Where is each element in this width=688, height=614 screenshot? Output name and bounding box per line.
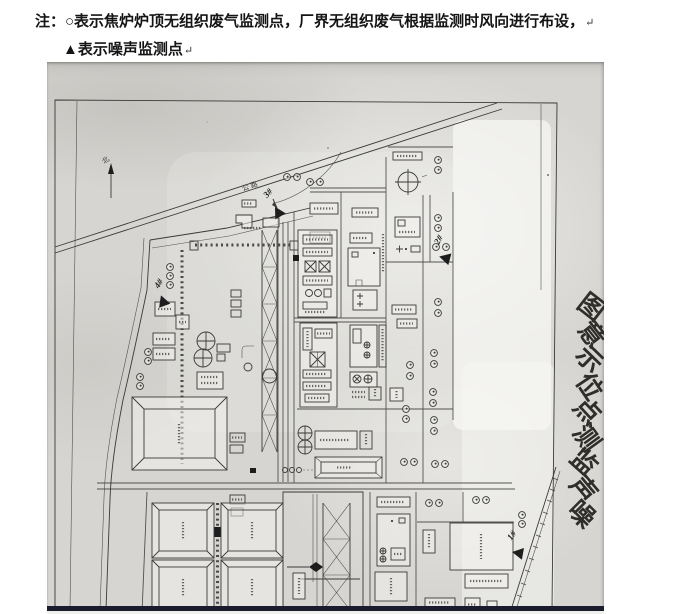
gas-monitoring-point-dot xyxy=(439,502,441,504)
blower-and-tanks xyxy=(230,426,382,478)
gas-monitoring-point-dot xyxy=(438,312,440,314)
gas-monitoring-point-dot xyxy=(522,523,524,525)
gas-monitoring-point-dot xyxy=(434,430,436,432)
gas-monitoring-point-dot xyxy=(429,502,431,504)
gas-monitoring-point-dot xyxy=(170,275,172,277)
gas-monitoring-point-dot xyxy=(320,181,322,183)
north-arrow xyxy=(108,163,114,198)
coal-yard-large xyxy=(132,397,227,470)
gas-monitoring-point-dot xyxy=(434,352,436,354)
coke-oven-block-lower xyxy=(300,323,337,407)
gas-monitoring-point-dot xyxy=(434,363,436,365)
lattice-tower-lower xyxy=(283,492,363,610)
scanned-map-image: 1#2#3#4# 北公路 图意示位点测监声噪 xyxy=(47,62,604,614)
gas-monitoring-point-dot xyxy=(410,375,412,377)
note-line-1-text: 注：○表示焦炉炉顶无组织废气监测点，厂界无组织废气根据监测时风向进行布设， xyxy=(35,14,584,30)
gas-monitoring-point-dot xyxy=(435,463,437,465)
gas-monitoring-point-dot xyxy=(287,176,289,178)
gas-monitoring-point-dot xyxy=(438,217,440,219)
gas-monitoring-point-dot xyxy=(433,402,435,404)
north-label: 北 xyxy=(101,155,111,166)
gas-monitoring-point-dot xyxy=(148,360,150,362)
gas-monitoring-point-dot xyxy=(297,176,299,178)
gas-monitoring-point-dot xyxy=(476,499,478,501)
gas-monitoring-point-dot xyxy=(436,246,438,248)
gas-monitoring-point-dot xyxy=(438,227,440,229)
gas-monitoring-point-dot xyxy=(404,461,406,463)
gas-monitoring-point-dot xyxy=(414,461,416,463)
gas-monitoring-point-dot xyxy=(445,463,447,465)
gas-monitoring-point-dot xyxy=(140,376,142,378)
title-char: 噪 xyxy=(562,495,602,535)
paragraph-return-mark: ↵ xyxy=(585,17,594,29)
gas-monitoring-point-dot xyxy=(406,418,408,420)
paragraph-return-mark: ↵ xyxy=(184,45,193,57)
note-line-2: ▲表示噪声监测点↵ xyxy=(63,38,193,59)
gas-monitoring-point-dot xyxy=(310,181,312,183)
gas-monitoring-point-dot xyxy=(486,499,488,501)
gas-monitoring-point-dot xyxy=(434,419,436,421)
gas-monitoring-point-dot xyxy=(438,169,440,171)
handwritten-title: 图意示位点测监声噪 xyxy=(562,288,604,535)
gas-monitoring-point-dot xyxy=(438,301,440,303)
gas-monitoring-point-dot xyxy=(170,266,172,268)
gas-monitoring-point-dot xyxy=(406,408,408,410)
gas-monitoring-point-dot xyxy=(433,391,435,393)
gas-monitoring-point-dot xyxy=(438,159,440,161)
gas-monitoring-point-dot xyxy=(410,364,412,366)
gas-monitoring-point-dot xyxy=(148,351,150,353)
noise-point-label: 4# xyxy=(151,277,165,291)
gas-monitoring-point-dot xyxy=(170,284,172,286)
document-page: 注：○表示焦炉炉顶无组织废气监测点，厂界无组织废气根据监测时风向进行布设，↵ ▲… xyxy=(0,0,688,614)
gas-monitoring-point-dot xyxy=(140,385,142,387)
gas-monitoring-point-dot xyxy=(446,246,448,248)
gas-monitoring-point-dot xyxy=(522,514,524,516)
note-line-2-text: ▲表示噪声监测点 xyxy=(63,42,183,58)
coke-oven-block-upper xyxy=(298,230,337,317)
site-plan-drawing: 1#2#3#4# 北公路 图意示位点测监声噪 xyxy=(47,62,604,614)
note-line-1: 注：○表示焦炉炉顶无组织废气监测点，厂界无组织废气根据监测时风向进行布设，↵ xyxy=(35,10,594,31)
